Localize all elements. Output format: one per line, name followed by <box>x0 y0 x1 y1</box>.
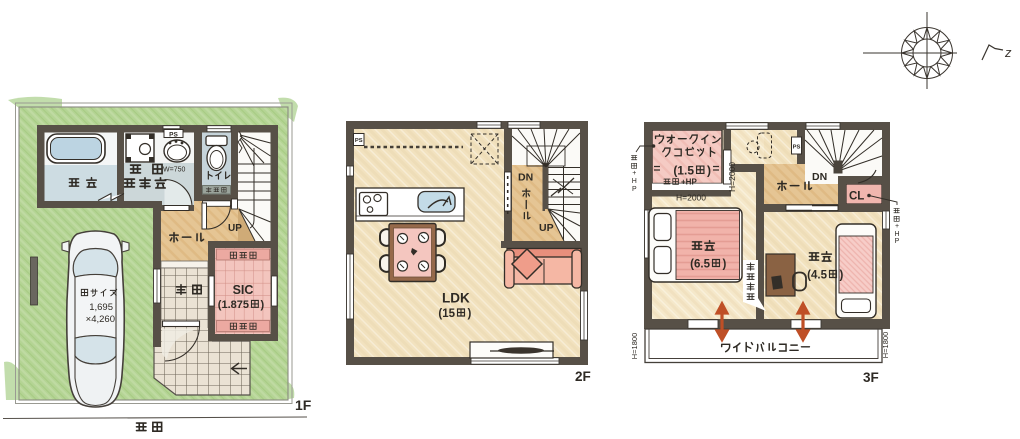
svg-text:(15: (15 <box>438 308 455 320</box>
svg-text:+HP: +HP <box>681 178 697 187</box>
svg-text:3F: 3F <box>863 370 879 385</box>
svg-text:PS: PS <box>169 131 178 138</box>
svg-text:): ) <box>840 270 844 282</box>
svg-text:1,695: 1,695 <box>89 302 113 313</box>
svg-text:+: + <box>895 223 899 230</box>
svg-text:PS: PS <box>355 138 363 144</box>
svg-text:×4,260: ×4,260 <box>86 314 115 325</box>
svg-text:(1.875: (1.875 <box>218 299 249 311</box>
svg-text:DN: DN <box>518 172 533 184</box>
svg-text:z: z <box>1004 45 1012 60</box>
svg-text:(1.5: (1.5 <box>673 164 694 178</box>
svg-text:CL: CL <box>849 191 864 203</box>
svg-text:H=1800: H=1800 <box>630 333 639 359</box>
svg-text:2F: 2F <box>575 369 591 384</box>
svg-text:(4.5: (4.5 <box>807 270 827 282</box>
svg-text:H: H <box>632 178 637 185</box>
svg-text:): ) <box>468 308 472 320</box>
svg-text:W=750: W=750 <box>163 167 185 174</box>
svg-text:LDK: LDK <box>442 291 470 306</box>
svg-text:P: P <box>632 186 637 193</box>
svg-text:H=2000: H=2000 <box>676 193 706 203</box>
svg-text:1F: 1F <box>295 397 312 413</box>
svg-text:DN: DN <box>812 171 827 183</box>
svg-text:): ) <box>261 299 265 311</box>
svg-text:PS: PS <box>793 145 801 151</box>
svg-text:(6.5: (6.5 <box>690 259 710 271</box>
svg-text:H=2000: H=2000 <box>727 162 737 192</box>
svg-text:UP: UP <box>539 222 554 234</box>
svg-text:): ) <box>707 164 711 178</box>
svg-text:): ) <box>723 259 727 271</box>
svg-text:P: P <box>895 238 900 245</box>
svg-text:UP: UP <box>228 223 242 234</box>
svg-text:+: + <box>632 170 636 177</box>
svg-text:H=1800: H=1800 <box>881 332 890 358</box>
svg-text:SIC: SIC <box>233 283 254 297</box>
svg-text:H: H <box>894 231 899 238</box>
